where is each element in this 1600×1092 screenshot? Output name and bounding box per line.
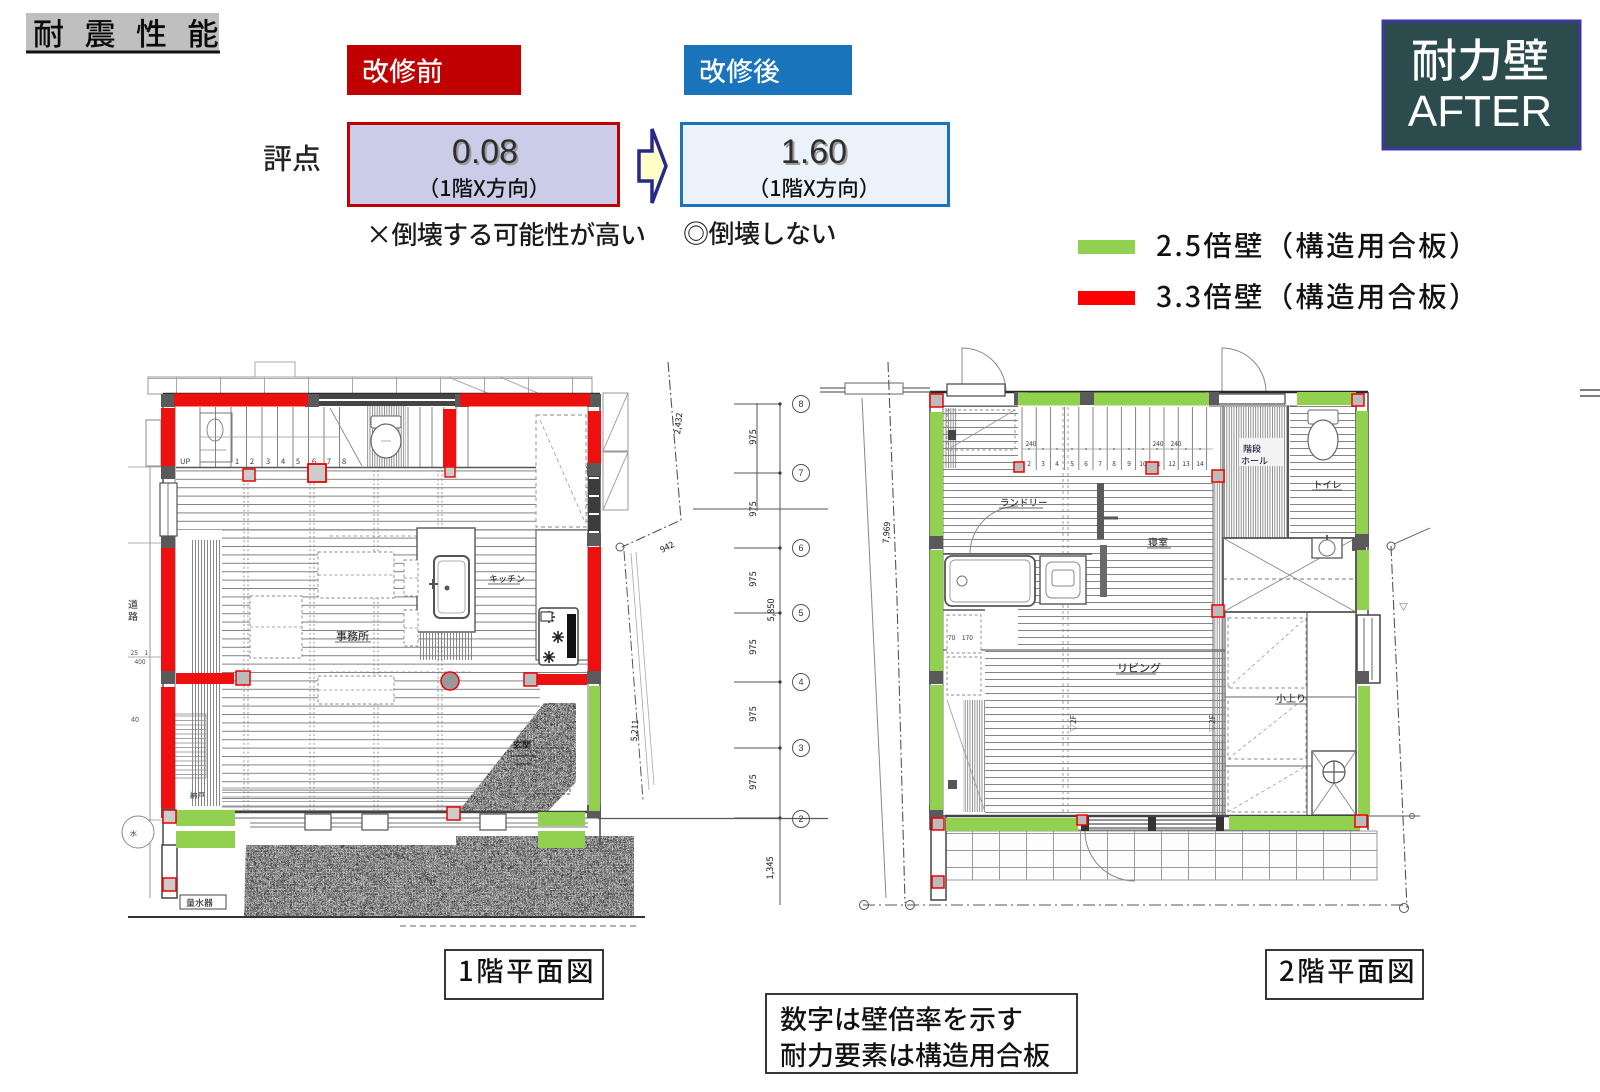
svg-text:4: 4 xyxy=(798,677,803,687)
svg-text:3: 3 xyxy=(798,743,803,753)
svg-text:0.08: 0.08 xyxy=(452,133,518,171)
svg-text:6: 6 xyxy=(798,543,803,553)
svg-text:8: 8 xyxy=(798,399,803,409)
svg-text:AFTER: AFTER xyxy=(1408,87,1552,136)
svg-text:7: 7 xyxy=(798,468,803,478)
svg-text:1.60: 1.60 xyxy=(781,133,847,171)
svg-text:5: 5 xyxy=(798,608,803,618)
